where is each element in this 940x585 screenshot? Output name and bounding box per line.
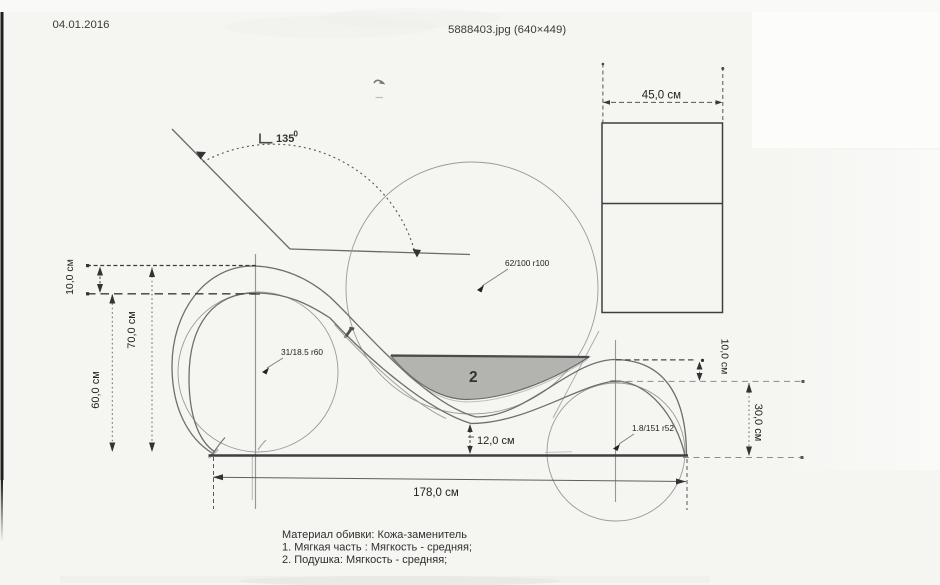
svg-text:1.8/151 r52: 1.8/151 r52 — [632, 423, 674, 433]
svg-text:10,0 см: 10,0 см — [719, 339, 731, 375]
svg-text:2: 2 — [469, 369, 478, 386]
svg-text:31/18.5 r60: 31/18.5 r60 — [281, 347, 323, 357]
svg-text:70,0 см: 70,0 см — [126, 311, 138, 349]
svg-text:10,0 см: 10,0 см — [64, 259, 76, 295]
svg-text:60,0 см: 60,0 см — [90, 371, 102, 409]
svg-text:12,0 см: 12,0 см — [477, 435, 515, 447]
svg-text:04.01.2016: 04.01.2016 — [53, 19, 110, 31]
svg-text:135: 135 — [276, 133, 294, 145]
svg-text:62/100 r100: 62/100 r100 — [505, 258, 550, 268]
svg-text:178,0 см: 178,0 см — [413, 487, 459, 499]
svg-text:2. Подушка: Мягкость - средняя: 2. Подушка: Мягкость - средняя; — [282, 554, 447, 566]
svg-text:1. Мягкая часть : Мягкость - с: 1. Мягкая часть : Мягкость - средняя; — [282, 542, 472, 554]
svg-text:5888403.jpg (640×449): 5888403.jpg (640×449) — [448, 24, 566, 36]
svg-text:45,0 см: 45,0 см — [642, 90, 681, 102]
svg-text:Материал обивки: Кожа-замените: Материал обивки: Кожа-заменитель — [282, 529, 467, 541]
svg-text:0: 0 — [294, 130, 299, 139]
svg-text:30,0 см: 30,0 см — [752, 404, 764, 442]
